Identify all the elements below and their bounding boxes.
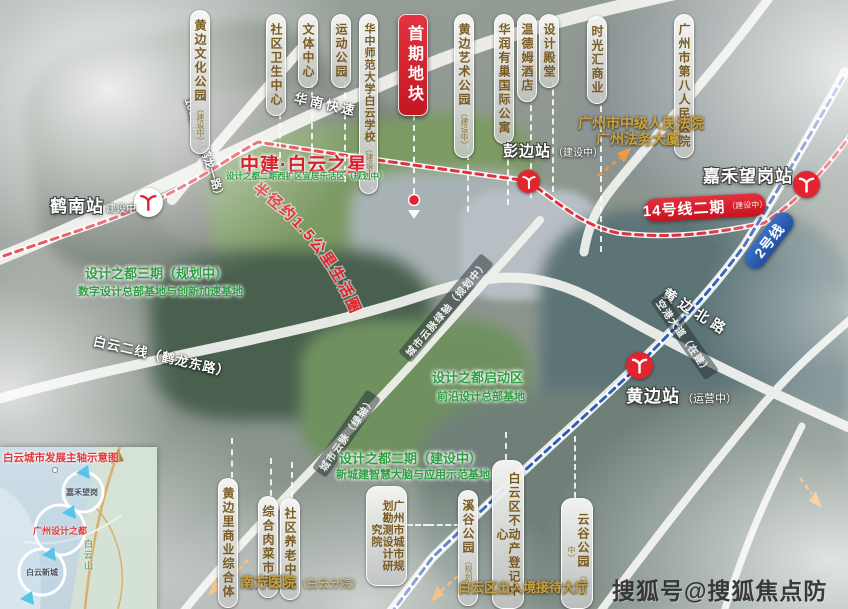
southern-hospital-branch: （白云分院） (296, 578, 362, 590)
poi-label: 华润有巢国际公寓 (497, 23, 511, 135)
poi-label: 运动公园 (334, 23, 348, 79)
development-axis-inset-map: 白云城市发展主轴示意图 嘉禾望岗 广州设计之都 白云新城 白云山 (0, 447, 157, 609)
poi-label: 云谷公园 (576, 513, 590, 569)
poi-label: 时光汇商业 (590, 25, 604, 95)
poi-status: （建设中） (196, 105, 205, 145)
poi-label: 广州市城市规划勘测设计研究院 (370, 500, 404, 572)
poi-pill-huangbianli-mall: 黄边里商业综合体 (218, 478, 238, 608)
poi-label: 黄边艺术公园 (457, 23, 471, 107)
inset-node-jiahewanggang: 嘉禾望岗 (66, 487, 98, 498)
station-jiahewanggang: 嘉禾望岗站 (703, 162, 793, 187)
station-status: 建设中 (106, 204, 136, 215)
inset-title: 白云城市发展主轴示意图 (3, 450, 119, 465)
station-henan: 鹤南站建设中 (50, 192, 136, 217)
design-city-phase3-title: 设计之都三期（规划中） (85, 263, 228, 282)
station-name: 鹤南站 (50, 197, 104, 216)
inset-node-baiyun-newtown: 白云新城 (26, 567, 58, 578)
metro-icon-huangbian (626, 352, 653, 379)
metro-icon-jiahewanggang (793, 171, 820, 198)
project-subtitle: 设计之都二期西扩区宜居乐活区（规划中） (226, 170, 388, 182)
poi-pill-sports-park: 运动公园 (331, 14, 351, 88)
poi-label: 黄边里商业综合体 (221, 487, 235, 599)
design-city-phase2-desc: 新城建智慧大脑与应用示范基地 (336, 466, 490, 482)
poi-label: 华中师范大学白云学校 (363, 23, 375, 143)
station-status: （运营中） (682, 393, 737, 405)
poi-label: 温德姆酒店 (520, 23, 534, 93)
line14-label: 14号线二期 (642, 196, 726, 221)
poi-pill-crland-apartment: 华润有巢国际公寓 (494, 14, 514, 144)
station-status: （建设中） (553, 148, 603, 159)
immigration-hall-label: 白云区出入境接待大厅 (458, 577, 588, 596)
poi-label: 溪谷公园 (461, 499, 475, 555)
line14-status: （建设中） (727, 199, 768, 212)
station-pengbian: 彭边站（建设中） (503, 140, 603, 161)
poi-pill-shiguanghui: 时光汇商业 (587, 16, 607, 104)
station-name: 嘉禾望岗站 (703, 167, 793, 186)
plot-badge-label: 首期地块 (405, 25, 422, 105)
poi-pill-design-hall: 设计殿堂 (539, 14, 559, 88)
design-city-phase3-desc: 数字设计总部基地与创新加速基地 (78, 283, 243, 299)
design-city-phase2-title: 设计之都二期（建设中） (339, 448, 482, 467)
poi-pill-wyndham-hotel: 温德姆酒店 (517, 14, 537, 102)
metro-icon-henan (134, 188, 163, 217)
poi-label: 黄边文化公园 (193, 19, 207, 103)
inset-node-design-city: 广州设计之都 (33, 524, 87, 537)
poi-status: （建设中） (460, 109, 469, 149)
design-city-startzone-desc: 前沿设计总部基地 (437, 388, 525, 404)
station-name: 黄边站 (626, 387, 680, 406)
poi-pill-culture-park: 黄边文化公园（建设中） (190, 10, 210, 154)
station-name: 彭边站 (503, 143, 551, 160)
aerial-promo-map: 半径约1.5公里生活圈 黄边文化公园（建设中） (0, 0, 848, 609)
station-huangbian: 黄边站（运营中） (626, 382, 737, 407)
life-circle-label: 半径约1.5公里生活圈 (250, 179, 364, 317)
poi-pill-health-center: 社区卫生中心 (266, 14, 286, 116)
poi-label: 社区卫生中心 (269, 23, 283, 107)
southern-hospital-name: 南方医院 (240, 574, 296, 590)
southern-hospital-label: 南方医院（白云分院） (240, 572, 362, 592)
poi-pill-sports-center: 文体中心 (298, 14, 318, 88)
design-city-startzone-title: 设计之都启动区 (432, 367, 523, 386)
project-location-marker (408, 195, 420, 220)
first-phase-plot-badge: 首期地块 (398, 14, 428, 116)
poi-label: 文体中心 (301, 23, 315, 79)
poi-pill-art-park: 黄边艺术公园（建设中） (454, 14, 474, 158)
watermark: 搜狐号@搜狐焦点防城港站 (612, 572, 848, 609)
legal-affairs-tower-label: 广州法务大厦 (596, 129, 680, 149)
metro-icon-pengbian (517, 170, 540, 193)
inset-baiyun-mountain-label: 白云山 (82, 539, 95, 572)
poi-label: 设计殿堂 (542, 23, 556, 79)
poi-pill-planning-institute: 广州市城市规划勘测设计研究院 (366, 486, 407, 586)
